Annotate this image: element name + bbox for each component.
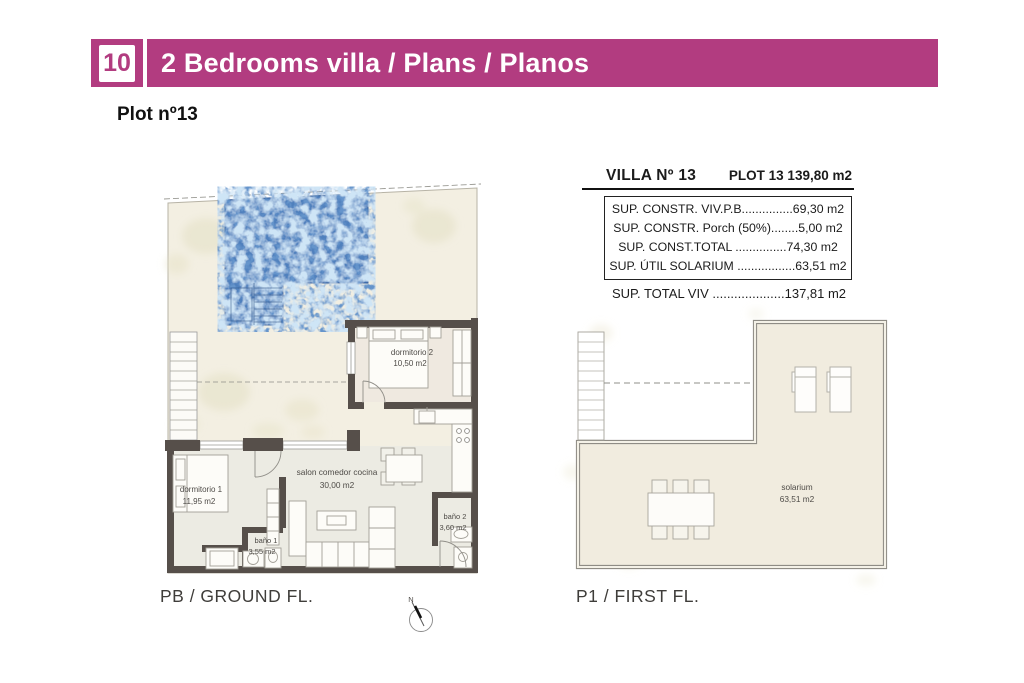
label-salon-area: 30,00 m2 bbox=[320, 480, 355, 490]
exterior-stairs bbox=[170, 332, 197, 440]
label-bano-2: baño 2 bbox=[444, 512, 467, 521]
label-solarium: solarium bbox=[781, 482, 812, 492]
label-bano-2-area: 3,60 m2 bbox=[439, 523, 466, 532]
label-salon: salon comedor cocina bbox=[297, 467, 378, 477]
label-dormitorio-1-area: 11,95 m2 bbox=[183, 497, 216, 506]
label-dormitorio-2-area: 10,50 m2 bbox=[393, 359, 427, 368]
compass-n-label: N bbox=[408, 595, 413, 604]
ground-floor-plan: dormitorio 2 10,50 m2 dormitorio 1 11,95… bbox=[164, 184, 481, 573]
label-dormitorio-2: dormitorio 2 bbox=[391, 348, 434, 357]
first-floor-stairs bbox=[578, 332, 604, 440]
first-floor-plan: solarium 63,51 m2 bbox=[563, 308, 885, 586]
label-bano-1-area: 3,55 m2 bbox=[248, 547, 275, 556]
north-compass: N bbox=[408, 595, 432, 632]
solarium-floor bbox=[578, 322, 885, 567]
plans-canvas: dormitorio 2 10,50 m2 dormitorio 1 11,95… bbox=[0, 0, 1024, 683]
ground-floor-caption: PB / GROUND FL. bbox=[160, 586, 313, 607]
first-floor-caption: P1 / FIRST FL. bbox=[576, 586, 699, 607]
label-solarium-area: 63,51 m2 bbox=[780, 494, 815, 504]
label-bano-1: baño 1 bbox=[255, 536, 278, 545]
outdoor-table-set bbox=[648, 480, 714, 539]
page: { "header": { "number": "10", "title": "… bbox=[0, 0, 1024, 683]
label-dormitorio-1: dormitorio 1 bbox=[180, 485, 223, 494]
